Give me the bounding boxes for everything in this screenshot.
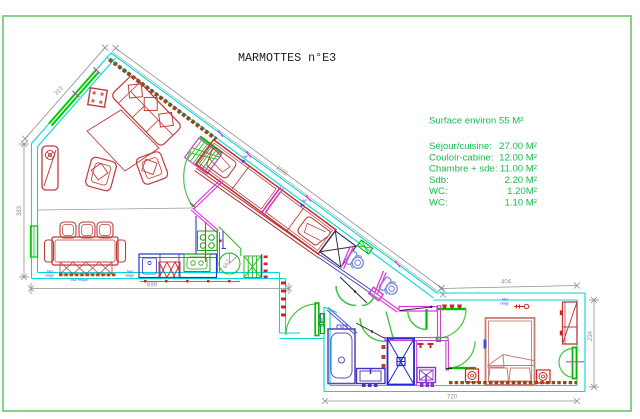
svg-text:MARMOTTES n°E3: MARMOTTES n°E3 [238, 51, 336, 65]
svg-text:Surface environ 55 M²: Surface environ 55 M² [429, 116, 524, 127]
svg-text:beige: beige [126, 274, 135, 278]
svg-text:Sdb:: Sdb: [429, 175, 449, 186]
svg-text:27.00 M²: 27.00 M² [499, 141, 538, 152]
svg-text:WC:: WC: [429, 186, 448, 197]
svg-text:beige: beige [46, 274, 55, 278]
svg-text:beige: beige [501, 302, 510, 306]
svg-text:404: 404 [501, 280, 512, 286]
svg-text:WC:: WC: [429, 198, 448, 209]
svg-text:Séjour/cuisine:: Séjour/cuisine: [429, 141, 492, 152]
svg-text:WF: WF [243, 155, 249, 159]
svg-text:Mur frèque: Mur frèque [71, 278, 88, 282]
svg-text:2.20 M²: 2.20 M² [504, 175, 537, 186]
svg-text:WF: WF [302, 199, 308, 203]
svg-text:1.20M²: 1.20M² [507, 186, 538, 197]
svg-text:234: 234 [588, 330, 594, 341]
svg-text:383: 383 [17, 205, 23, 216]
svg-text:1.10 M²: 1.10 M² [504, 198, 537, 209]
svg-text:Chambre + sde:: Chambre + sde: [429, 164, 498, 175]
svg-text:12.00 M²: 12.00 M² [499, 152, 538, 163]
svg-text:11.00 M²: 11.00 M² [500, 164, 538, 175]
svg-text:Couloir-cabine:: Couloir-cabine: [429, 152, 494, 163]
svg-text:720: 720 [447, 395, 458, 401]
svg-text:699: 699 [147, 283, 158, 289]
